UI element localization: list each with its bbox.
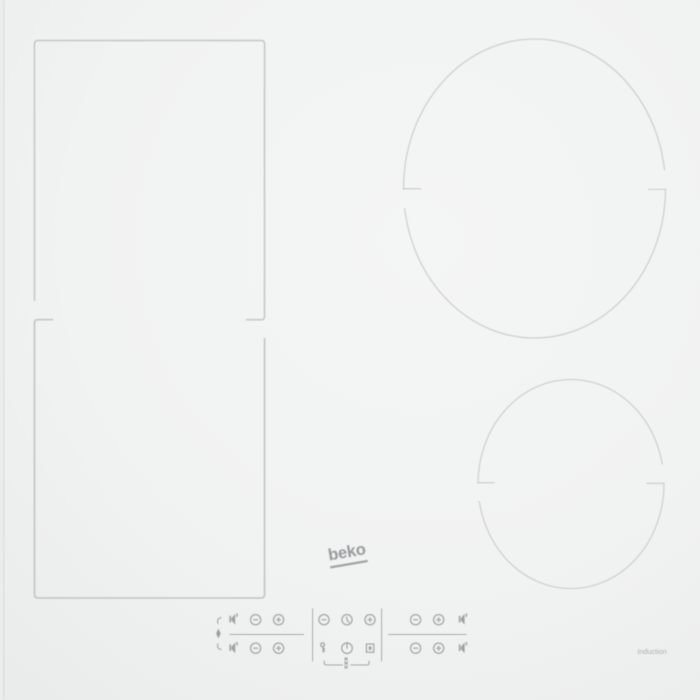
svg-text:Induction: Induction <box>637 647 666 656</box>
